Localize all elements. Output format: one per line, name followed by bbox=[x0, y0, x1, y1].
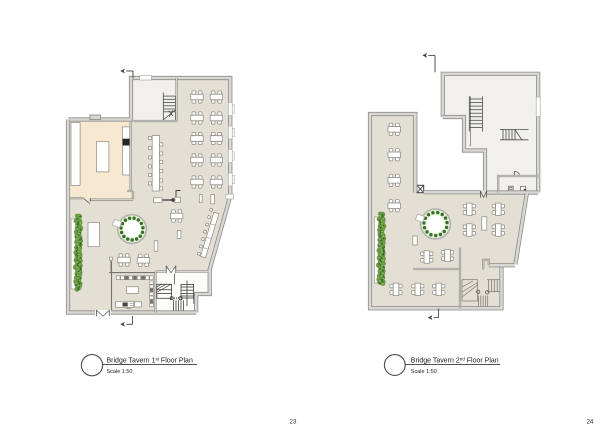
svg-text:Scale 1:50: Scale 1:50 bbox=[107, 369, 133, 375]
svg-text:24: 24 bbox=[587, 419, 594, 426]
svg-text:Scale 1:50: Scale 1:50 bbox=[411, 369, 437, 375]
svg-text:23: 23 bbox=[290, 419, 297, 426]
svg-text:Bridge Tavern 1st Floor Plan: Bridge Tavern 1st Floor Plan bbox=[107, 357, 193, 365]
svg-text:Bridge Tavern 2nd Floor Plan: Bridge Tavern 2nd Floor Plan bbox=[411, 357, 499, 365]
